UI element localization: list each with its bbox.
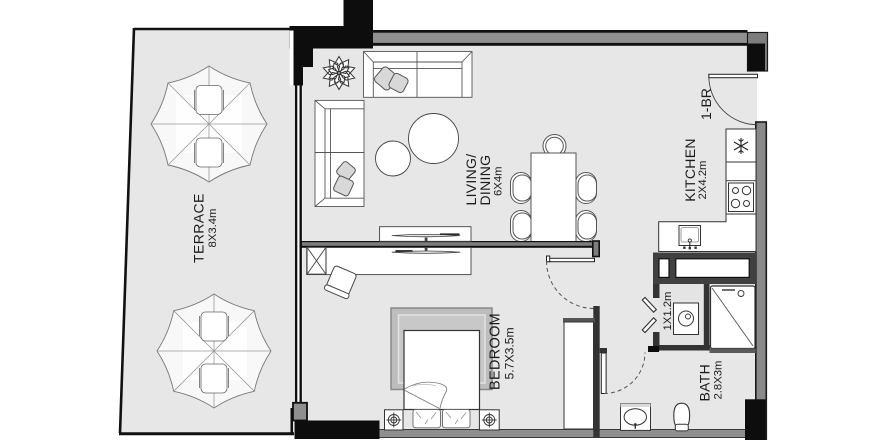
svg-text:KITCHEN: KITCHEN bbox=[682, 138, 698, 202]
svg-text:1-BR: 1-BR bbox=[698, 88, 714, 120]
svg-text:8X3.4m: 8X3.4m bbox=[207, 209, 219, 248]
svg-text:TERRACE: TERRACE bbox=[191, 193, 207, 263]
svg-text:DINING: DINING bbox=[477, 155, 493, 206]
svg-text:5.7X3.5m: 5.7X3.5m bbox=[503, 327, 517, 379]
svg-text:1X1.2m: 1X1.2m bbox=[662, 292, 674, 331]
svg-text:BEDROOM: BEDROOM bbox=[488, 313, 504, 390]
svg-text:2X4.2m: 2X4.2m bbox=[697, 161, 709, 200]
svg-text:6X4m: 6X4m bbox=[493, 166, 505, 196]
svg-text:2.8X3m: 2.8X3m bbox=[713, 361, 725, 400]
svg-text:BATH: BATH bbox=[697, 364, 713, 402]
